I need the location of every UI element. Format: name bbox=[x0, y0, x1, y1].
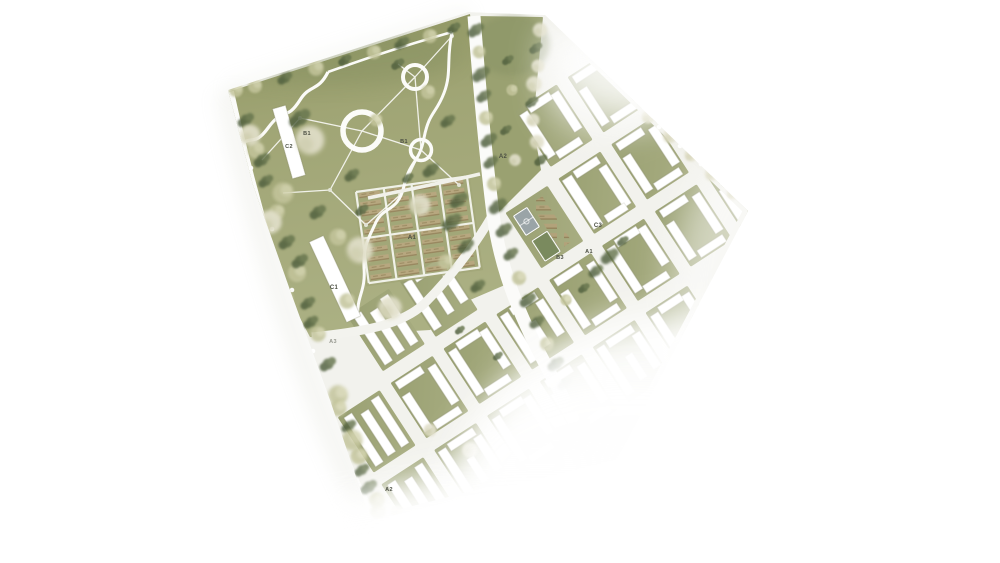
path-node bbox=[364, 223, 368, 227]
tree-pale bbox=[532, 60, 545, 73]
label-a1-gardens: A1 bbox=[585, 249, 593, 255]
street-dot bbox=[699, 162, 704, 167]
masterplan-canvas: C2 B1 B1 A2 A1 C1 C3 B3 A1 A3 A2 bbox=[0, 0, 1000, 563]
street-dot bbox=[249, 166, 254, 171]
tree-light bbox=[512, 271, 526, 285]
tree-pale bbox=[685, 149, 698, 162]
tree-light bbox=[560, 294, 571, 305]
tree-light bbox=[330, 229, 347, 246]
tree-pale bbox=[424, 424, 437, 437]
tree-pale bbox=[296, 126, 325, 155]
tree-pale bbox=[410, 195, 431, 216]
tree-light bbox=[273, 183, 294, 204]
tree-pale bbox=[509, 154, 521, 166]
label-b1-east: B1 bbox=[400, 139, 408, 145]
label-a2-avenue: A2 bbox=[499, 154, 508, 160]
tree-pale bbox=[347, 237, 373, 263]
path-node bbox=[457, 183, 461, 187]
label-a3-street: A3 bbox=[329, 339, 337, 345]
tree-light bbox=[473, 46, 486, 59]
tree-light bbox=[438, 254, 453, 269]
tree-light bbox=[487, 177, 501, 191]
tree-pale bbox=[530, 135, 544, 149]
label-a1-allotments: A1 bbox=[408, 235, 417, 241]
label-b1-west: B1 bbox=[303, 131, 311, 137]
tree-pale bbox=[240, 125, 261, 146]
tree-light bbox=[367, 45, 381, 59]
tree-light bbox=[423, 29, 437, 43]
tree-pale bbox=[526, 76, 542, 92]
tree-pale bbox=[378, 296, 401, 319]
street-dot bbox=[657, 125, 662, 130]
tree-light bbox=[421, 85, 435, 99]
label-c3: C3 bbox=[594, 223, 603, 229]
label-a2-south: A2 bbox=[385, 487, 393, 493]
label-c2: C2 bbox=[285, 144, 293, 150]
tree-light bbox=[339, 293, 354, 308]
tree-pale bbox=[663, 129, 677, 143]
path-node bbox=[328, 188, 332, 192]
label-b3: B3 bbox=[556, 255, 564, 261]
site-plan-svg: C2 B1 B1 A2 A1 C1 C3 B3 A1 A3 A2 bbox=[0, 0, 1000, 563]
label-c1: C1 bbox=[330, 285, 339, 291]
tree-pale bbox=[527, 114, 540, 127]
street-dot bbox=[678, 144, 683, 149]
tree-light bbox=[310, 326, 325, 341]
tree-light bbox=[479, 111, 493, 125]
tree-light bbox=[506, 84, 517, 95]
tree-pale bbox=[533, 23, 547, 37]
tree-light bbox=[370, 114, 383, 127]
